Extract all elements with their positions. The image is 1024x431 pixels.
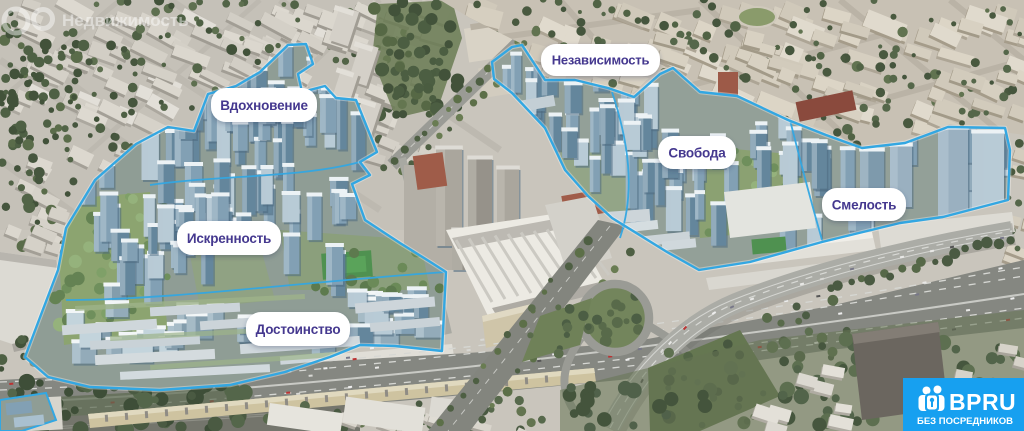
svg-text:БЕЗ ПОСРЕДНИКОВ: БЕЗ ПОСРЕДНИКОВ [917,416,1013,427]
svg-text:Недвижимость: Недвижимость [62,11,189,30]
svg-text:Смелость: Смелость [832,197,897,212]
svg-text:Свобода: Свобода [668,145,726,160]
svg-text:Независимость: Независимость [552,53,650,68]
svg-text:Достоинство: Достоинство [256,322,341,337]
svg-text:Вдохновение: Вдохновение [220,98,308,113]
svg-text:BPRU: BPRU [949,389,1016,415]
svg-text:Искренность: Искренность [187,231,271,246]
